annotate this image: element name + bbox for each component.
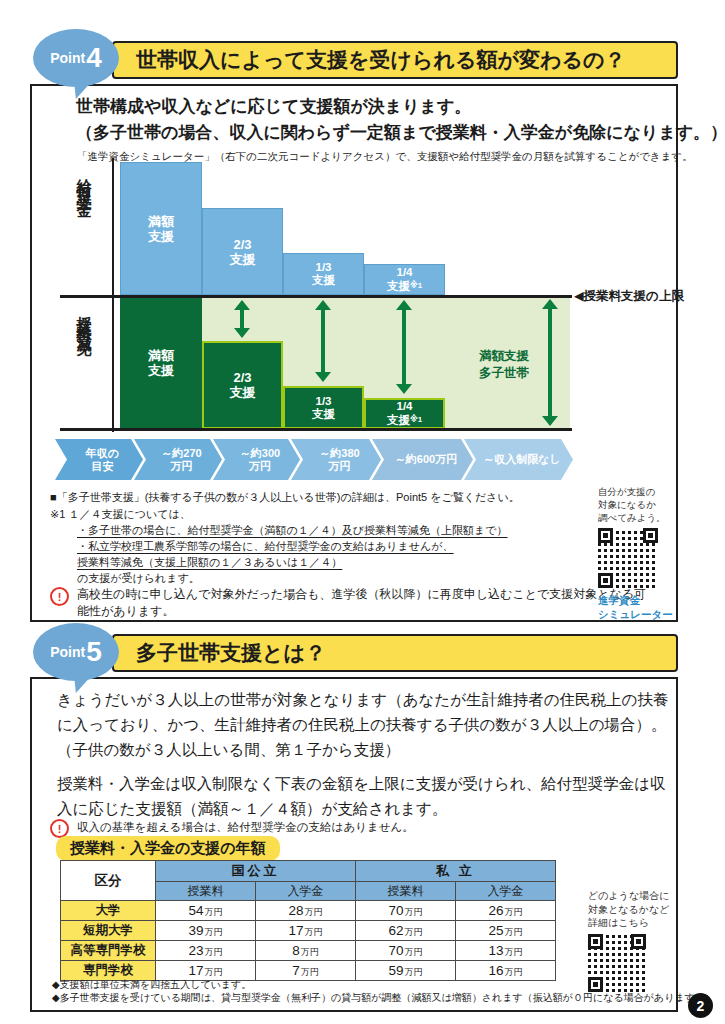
point5-paragraphs: きょうだいが３人以上の世帯が対象となります（あなたが生計維持者の住民税上の扶養に… bbox=[57, 687, 675, 821]
multi-child-full-arrow-icon bbox=[542, 299, 558, 426]
income-axis-step: ～約600万円 bbox=[372, 439, 473, 480]
income-axis-step: ～約380万円 bbox=[291, 439, 381, 480]
point4-title-bar: 世帯収入によって支援を受けられる額が変わるの？ bbox=[112, 41, 678, 79]
note-bullet-1: ・多子世帯の場合に、給付型奨学金（満額の１／４）及び授業料等減免（上限額まで） bbox=[77, 523, 508, 538]
point5-badge-prefix: Point bbox=[50, 644, 85, 660]
simulator-qr-panel: 自分が支援の 対象になるか 調べてみよう。 進学資金 シミュレーター bbox=[598, 485, 674, 621]
tuition-limit-label: ◀授業料支援の上限 bbox=[574, 288, 684, 305]
gap-arrow-icon bbox=[315, 300, 331, 382]
point4-badge: Point4 bbox=[33, 29, 119, 87]
axis-label-tuition: 授業料等減免 bbox=[76, 304, 93, 334]
point4-warning-text: 高校生の時に申し込んで対象外だった場合も、進学後（秋以降）に再度申し込むことで支… bbox=[77, 586, 650, 620]
chart-baseline bbox=[60, 428, 572, 431]
table-row: 大学 54万円 28万円 70万円 26万円 bbox=[61, 901, 556, 921]
point5-para1b: （子供の数が３人以上いる間、第１子から支援） bbox=[57, 737, 675, 762]
point5-para2: 授業料・入学金は収入制限なく下表の金額を上限に支援が受けられ、給付型奨学金は収入… bbox=[57, 771, 675, 821]
point4-badge-number: 4 bbox=[86, 44, 102, 72]
warning-icon bbox=[50, 587, 69, 606]
gap-arrow-icon bbox=[234, 300, 250, 338]
scholarship-bar-one-quarter: 1/4 支援※1 bbox=[364, 264, 445, 295]
page-number-badge: 2 bbox=[688, 993, 713, 1018]
scholarship-bar-one-third: 1/3 支援 bbox=[283, 253, 364, 295]
footnote-loan-adjust: ◆多子世帯支援を受けている期間は、貸与型奨学金（無利子）の貸与額が調整（減額又は… bbox=[52, 991, 715, 1005]
income-axis-step: 年収の目安 bbox=[55, 439, 143, 480]
details-qr-panel: どのような場合に 対象となるかなど 詳細はこちら bbox=[588, 889, 692, 992]
point5-section: きょうだいが３人以上の世帯が対象となります（あなたが生計維持者の住民税上の扶養に… bbox=[30, 677, 678, 1012]
table-group-public: 国公立 bbox=[156, 861, 356, 882]
tuition-bar-one-third: 1/3 支援 bbox=[283, 386, 364, 429]
point4-section: 世帯構成や収入などに応じて支援額が決まります。 （多子世帯の場合、収入に関わらず… bbox=[30, 84, 678, 622]
income-axis-step: ～収入制限なし bbox=[464, 439, 573, 480]
point5-title: 多子世帯支援とは？ bbox=[136, 639, 326, 667]
point4-lead-line2: （多子世帯の場合、収入に関わらず一定額まで授業料・入学金が免除になります。） bbox=[76, 121, 725, 144]
multi-child-full-label: 満額支援 多子世帯 bbox=[479, 348, 529, 382]
table-title: 授業料・入学金の支援の年額 bbox=[56, 836, 280, 861]
scholarship-bar-full: 満額 支援 bbox=[120, 162, 202, 295]
point5-badge: Point5 bbox=[33, 623, 119, 681]
point4-badge-prefix: Point bbox=[50, 50, 85, 66]
qr-code-icon bbox=[598, 528, 658, 588]
simulator-link-label: 進学資金 シミュレーター bbox=[598, 593, 674, 621]
table-row: 高等専門学校 23万円 8万円 70万円 13万円 bbox=[61, 941, 556, 961]
point4-warning: 高校生の時に申し込んで対象外だった場合も、進学後（秋以降）に再度申し込むことで支… bbox=[50, 586, 650, 620]
footnote-rounding: ◆支援額は単位未満を四捨五入しています。 bbox=[52, 978, 251, 992]
document-page: Point4 世帯収入によって支援を受けられる額が変わるの？ 世帯構成や収入など… bbox=[0, 0, 725, 1024]
note-bullet-3: 授業料等減免（支援上限額の１／３あるいは１／４） bbox=[77, 555, 342, 570]
tuition-bar-full: 満額 支援 bbox=[120, 297, 202, 429]
point5-para1: きょうだいが３人以上の世帯が対象となります（あなたが生計維持者の住民税上の扶養に… bbox=[57, 687, 675, 737]
table-row: 短期大学 39万円 17万円 62万円 25万円 bbox=[61, 921, 556, 941]
table-subheader: 入学金 bbox=[256, 882, 356, 901]
income-axis-step: ～約300万円 bbox=[213, 439, 300, 480]
note-multi-child: ■「多子世帯支援」(扶養する子供の数が３人以上いる世帯)の詳細は、Point5 … bbox=[50, 490, 520, 505]
note-quarter-support: ※1 １／４支援については、 bbox=[50, 507, 191, 522]
note-bullet-2: ・私立学校理工農系学部等の場合に、給付型奨学金の支給はありませんが、 bbox=[77, 539, 454, 554]
table-subheader: 授業料 bbox=[356, 882, 456, 901]
point5-title-bar: 多子世帯支援とは？ bbox=[112, 634, 678, 672]
table-subheader: 入学金 bbox=[456, 882, 556, 901]
note-tail: の支援が受けられます。 bbox=[77, 571, 200, 586]
tuition-bar-one-quarter: 1/4 支援※1 bbox=[364, 398, 445, 429]
axis-label-scholarship: 給付型奨学金 bbox=[76, 166, 93, 196]
scholarship-bar-two-thirds: 2/3 支援 bbox=[202, 208, 283, 295]
gap-arrow-icon bbox=[396, 300, 412, 394]
income-axis-step: ～約270万円 bbox=[134, 439, 222, 480]
table-corner-header: 区分 bbox=[61, 861, 156, 901]
tuition-bar-two-thirds: 2/3 支援 bbox=[202, 341, 283, 429]
point5-badge-number: 5 bbox=[86, 638, 102, 666]
tuition-limit-line bbox=[60, 295, 572, 298]
point4-title: 世帯収入によって支援を受けられる額が変わるの？ bbox=[136, 46, 625, 74]
table-subheader: 授業料 bbox=[156, 882, 256, 901]
table-group-private: 私 立 bbox=[356, 861, 556, 882]
point4-lead-line1: 世帯構成や収入などに応じて支援額が決まります。 bbox=[76, 95, 471, 118]
support-amount-table: 区分 国公立 私 立 授業料 入学金 授業料 入学金 大学 54万円 28万円 … bbox=[60, 860, 556, 981]
qr-code-icon bbox=[588, 934, 646, 992]
point5-warning: 収入の基準を超える場合は、給付型奨学金の支給はありません。 bbox=[50, 818, 650, 838]
